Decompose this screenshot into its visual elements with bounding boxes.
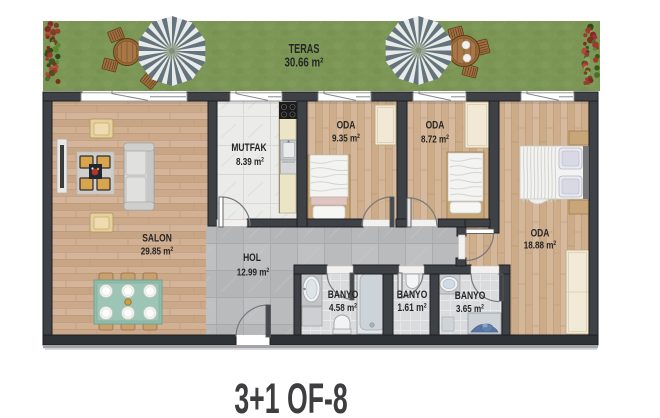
svg-text:29.85 m2: 29.85 m2 (141, 246, 173, 257)
svg-text:8.39 m2: 8.39 m2 (236, 156, 264, 167)
svg-text:12.99 m2: 12.99 m2 (237, 267, 269, 278)
svg-text:3+1 OF-8: 3+1 OF-8 (234, 375, 347, 418)
svg-text:SALON: SALON (142, 233, 172, 245)
svg-text:MUTFAK: MUTFAK (231, 142, 266, 154)
svg-text:ODA: ODA (426, 120, 445, 132)
svg-text:ODA: ODA (531, 228, 550, 240)
svg-text:18.88 m2: 18.88 m2 (524, 240, 556, 251)
svg-text:BANYO: BANYO (455, 290, 486, 302)
svg-text:HOL: HOL (243, 252, 261, 264)
svg-text:8.72 m2: 8.72 m2 (421, 134, 449, 145)
svg-text:TERAS: TERAS (289, 43, 320, 57)
svg-text:BANYO: BANYO (328, 289, 359, 301)
svg-text:3.65 m2: 3.65 m2 (456, 303, 484, 314)
svg-text:ODA: ODA (337, 120, 356, 132)
svg-text:9.35 m2: 9.35 m2 (332, 133, 360, 144)
svg-text:4.58 m2: 4.58 m2 (329, 302, 357, 313)
svg-text:1.61 m2: 1.61 m2 (397, 302, 427, 315)
svg-text:BANYO: BANYO (397, 289, 428, 301)
svg-text:30.66 m2: 30.66 m2 (284, 56, 323, 69)
